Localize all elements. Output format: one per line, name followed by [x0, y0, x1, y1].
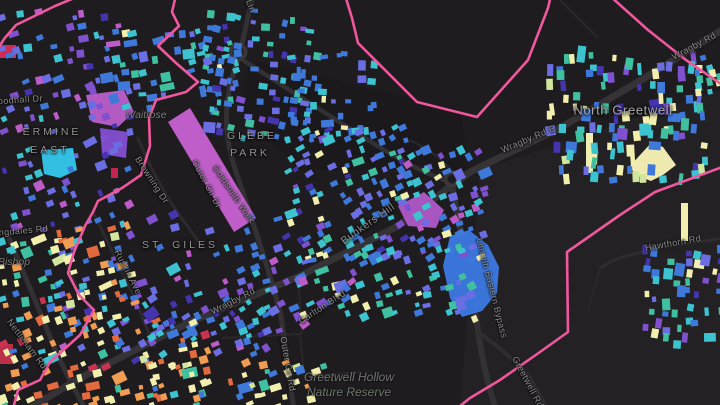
building [304, 169, 314, 178]
building [639, 174, 646, 183]
building [428, 263, 437, 272]
building [269, 257, 279, 266]
building [380, 198, 390, 207]
building [121, 69, 129, 76]
building [123, 39, 137, 48]
building [0, 295, 7, 302]
building [56, 230, 62, 238]
building [320, 363, 327, 370]
building [0, 127, 9, 135]
building [569, 54, 575, 64]
building [30, 114, 36, 121]
building [405, 290, 411, 295]
building [474, 148, 483, 156]
building [198, 355, 208, 365]
building [681, 118, 690, 131]
building [686, 251, 692, 257]
building [267, 42, 274, 47]
building [304, 112, 311, 118]
building [657, 62, 665, 71]
building [609, 176, 618, 183]
building [650, 246, 658, 257]
building [210, 330, 217, 336]
building [21, 297, 30, 308]
building [241, 372, 247, 378]
building [203, 122, 216, 134]
building [340, 192, 347, 199]
building [223, 244, 229, 252]
building [182, 362, 188, 368]
building [110, 232, 120, 242]
building [625, 57, 634, 70]
building [33, 180, 46, 193]
building [376, 190, 383, 197]
building [338, 113, 344, 120]
building [422, 291, 432, 299]
building [82, 331, 89, 339]
building [224, 100, 233, 107]
building [138, 51, 148, 63]
building [185, 294, 193, 303]
building [99, 35, 104, 40]
building [682, 332, 689, 342]
building [616, 165, 624, 176]
building [321, 96, 326, 103]
building [360, 218, 367, 226]
building [9, 91, 19, 100]
building [147, 293, 158, 304]
building [66, 300, 76, 309]
building [340, 293, 351, 303]
building [53, 54, 63, 63]
building [658, 93, 663, 104]
building [15, 123, 24, 133]
building [135, 328, 141, 335]
building [590, 171, 599, 182]
building [704, 307, 709, 316]
building [425, 253, 435, 263]
building [303, 120, 308, 126]
building [22, 209, 31, 217]
building [246, 400, 254, 405]
building-cluster-warm-mid [139, 355, 328, 405]
building [97, 340, 105, 346]
building [273, 216, 282, 223]
building [258, 379, 269, 392]
building [649, 141, 662, 150]
building [124, 199, 134, 209]
building [440, 285, 446, 290]
building [559, 165, 564, 174]
building [22, 352, 32, 361]
building [666, 61, 673, 71]
building [686, 258, 693, 266]
building [284, 168, 292, 175]
building [107, 225, 116, 232]
building [545, 125, 556, 136]
building [27, 161, 34, 168]
building [248, 40, 254, 47]
building [152, 56, 159, 64]
building [588, 52, 593, 59]
building [138, 69, 147, 77]
building [112, 28, 120, 35]
building [54, 316, 63, 326]
building [184, 279, 190, 287]
building [282, 394, 288, 400]
building [86, 245, 100, 258]
building [200, 79, 209, 85]
building [666, 98, 672, 104]
building [0, 115, 7, 122]
building [189, 350, 197, 359]
building [702, 277, 709, 284]
building [34, 169, 44, 178]
building [66, 292, 72, 299]
building [238, 306, 245, 313]
building [126, 230, 136, 240]
building [559, 124, 566, 133]
building [138, 92, 146, 96]
building [49, 128, 58, 135]
building [53, 112, 60, 120]
building [209, 54, 216, 61]
building-cluster-topleft-blues [0, 8, 122, 85]
building [290, 17, 295, 24]
building [147, 393, 155, 399]
building [560, 80, 566, 91]
landmark-ermine-cyan-block [41, 148, 77, 178]
building [170, 223, 180, 232]
building [10, 369, 20, 378]
building [190, 42, 196, 50]
building [139, 385, 144, 390]
building [306, 395, 316, 404]
building [359, 312, 370, 323]
building [61, 177, 70, 186]
building [668, 125, 674, 134]
building [279, 33, 285, 39]
building [612, 55, 617, 62]
building [272, 108, 280, 115]
building [345, 99, 351, 103]
building [70, 190, 77, 198]
building [470, 191, 479, 200]
building [642, 324, 648, 331]
building [695, 88, 701, 96]
building [281, 19, 288, 27]
building [288, 112, 295, 117]
building [158, 383, 165, 389]
building [290, 116, 297, 124]
building [160, 72, 171, 83]
landmark-crimson-block-b [111, 168, 118, 178]
building [355, 280, 365, 289]
building [362, 301, 371, 311]
building [581, 108, 592, 121]
building [683, 287, 690, 293]
building [273, 243, 284, 253]
building [314, 278, 321, 285]
building [557, 70, 565, 80]
building [21, 363, 29, 370]
building [104, 56, 111, 63]
building [13, 272, 21, 280]
building [318, 216, 325, 223]
building [253, 343, 260, 351]
building [233, 49, 242, 57]
building [189, 31, 195, 38]
building [601, 81, 606, 89]
building [312, 75, 318, 80]
building [247, 282, 254, 289]
building [284, 208, 298, 220]
building [298, 88, 305, 93]
building [69, 46, 74, 52]
building [414, 309, 424, 317]
building [296, 73, 305, 79]
map-canvas[interactable] [0, 0, 720, 405]
building [686, 95, 694, 104]
building [12, 290, 20, 298]
building [222, 24, 228, 30]
building [216, 128, 224, 136]
building [616, 141, 624, 153]
landmark-hawthorn-yellow-strip [681, 203, 688, 241]
building [308, 248, 315, 256]
building [174, 275, 182, 282]
building [389, 190, 396, 198]
building [376, 300, 384, 307]
building [627, 166, 632, 174]
building [716, 289, 720, 295]
building [213, 348, 223, 357]
building [158, 350, 168, 359]
building [36, 335, 44, 342]
building [98, 349, 109, 360]
building [45, 269, 52, 276]
building [18, 160, 27, 167]
building [282, 232, 291, 240]
building [403, 255, 411, 264]
building [76, 49, 84, 58]
building [133, 83, 141, 90]
building [385, 292, 393, 298]
building [258, 361, 268, 370]
building [694, 291, 699, 298]
building [368, 105, 374, 111]
building [673, 340, 681, 349]
building [111, 55, 121, 65]
building [341, 125, 348, 130]
building [223, 46, 229, 52]
building [50, 44, 58, 50]
building [99, 241, 105, 248]
building [197, 51, 206, 57]
building [59, 200, 67, 208]
building [337, 303, 345, 310]
building [188, 58, 197, 65]
building [280, 77, 287, 84]
building [345, 178, 353, 187]
building [258, 392, 266, 398]
building [159, 82, 175, 92]
building [47, 187, 57, 195]
building [182, 49, 195, 60]
building [358, 75, 367, 83]
building [240, 135, 246, 142]
building [80, 361, 86, 367]
building [586, 69, 594, 77]
building [191, 341, 198, 348]
building [40, 102, 49, 110]
building [186, 250, 192, 257]
building [321, 119, 334, 127]
minor-road-2 [560, 0, 598, 38]
building [472, 185, 478, 191]
building [584, 166, 589, 175]
building [247, 129, 256, 136]
building [152, 386, 158, 392]
building [79, 283, 88, 290]
building [668, 113, 681, 122]
building [677, 325, 682, 332]
building [269, 51, 274, 58]
building [212, 110, 220, 116]
building [79, 101, 87, 109]
building [190, 336, 197, 343]
building [48, 296, 53, 303]
building [146, 214, 158, 225]
building [288, 303, 299, 312]
building [119, 62, 125, 68]
building [573, 92, 580, 100]
building [216, 46, 224, 52]
building [416, 236, 426, 245]
building [244, 114, 252, 120]
building [344, 173, 351, 179]
building [361, 173, 369, 180]
building [213, 251, 220, 257]
building [75, 202, 80, 208]
building [546, 79, 553, 90]
building [390, 276, 399, 286]
building [425, 180, 435, 189]
building [40, 226, 48, 232]
building [318, 88, 327, 95]
building [212, 85, 221, 92]
building [109, 212, 116, 219]
building [597, 66, 604, 76]
building [677, 85, 684, 92]
building [371, 177, 378, 185]
building [306, 40, 311, 45]
building [0, 264, 5, 269]
building [406, 269, 413, 278]
building [218, 58, 225, 65]
building [205, 227, 215, 236]
building [269, 383, 282, 393]
building [700, 142, 707, 149]
building [135, 392, 145, 401]
building [690, 320, 698, 327]
building [347, 277, 357, 286]
building [207, 10, 215, 19]
building [23, 337, 31, 344]
building [94, 160, 107, 172]
building [358, 60, 366, 70]
building [142, 301, 149, 309]
building [316, 298, 329, 310]
building [415, 291, 422, 297]
building [179, 30, 186, 38]
building [707, 89, 713, 95]
building [292, 198, 300, 205]
building [260, 131, 268, 136]
building [234, 244, 243, 252]
building [61, 89, 72, 99]
building [367, 78, 376, 85]
building [85, 381, 100, 392]
building [82, 392, 91, 400]
building [22, 328, 33, 339]
building [77, 22, 87, 30]
building [24, 88, 33, 96]
building [228, 378, 234, 386]
building [38, 349, 46, 355]
building [230, 86, 236, 91]
building [31, 233, 47, 245]
building [374, 272, 384, 282]
building [293, 378, 301, 385]
building [304, 55, 311, 63]
building [211, 341, 220, 348]
building [236, 392, 244, 400]
building [361, 251, 368, 259]
building [96, 270, 105, 276]
building [22, 78, 30, 85]
building [647, 164, 655, 175]
building [250, 20, 256, 25]
building [372, 211, 381, 220]
building [305, 28, 314, 33]
building [20, 246, 34, 259]
building [16, 10, 24, 18]
building [236, 266, 245, 275]
building [50, 221, 55, 227]
map-viewport[interactable]: ERMINEEASTGLEBEPARKST. GILESNorth Greetw… [0, 0, 720, 405]
building [347, 225, 355, 233]
building [621, 111, 630, 122]
building [193, 291, 202, 298]
building [28, 194, 37, 202]
building [380, 210, 388, 218]
building [250, 66, 258, 71]
building [241, 358, 251, 368]
building [350, 294, 360, 304]
building [564, 54, 569, 64]
building [331, 99, 336, 103]
building [107, 319, 117, 329]
building [602, 103, 609, 113]
building [677, 72, 685, 81]
building [700, 254, 711, 267]
building [158, 358, 165, 364]
building [216, 122, 222, 128]
building [359, 259, 368, 267]
building [323, 286, 329, 292]
building [133, 278, 148, 289]
